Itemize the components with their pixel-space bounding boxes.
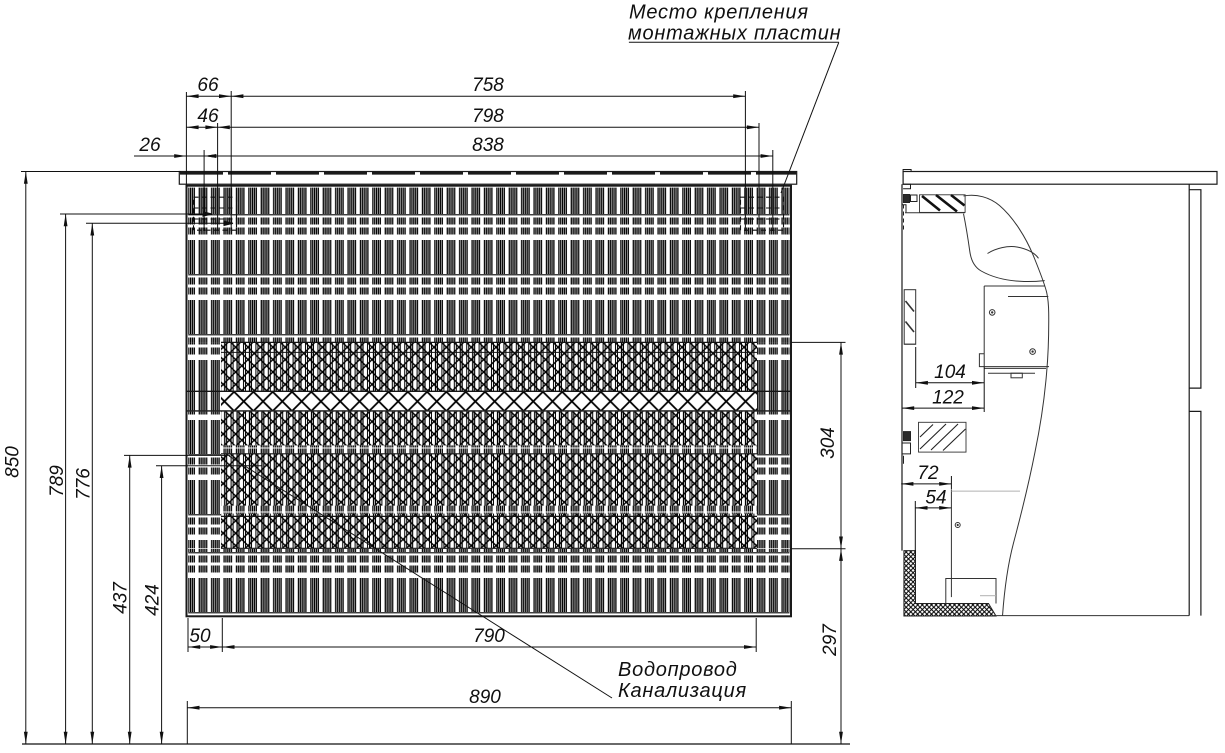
- svg-text:776: 776: [74, 468, 95, 500]
- svg-text:304: 304: [818, 427, 839, 459]
- svg-text:789: 789: [47, 465, 68, 497]
- svg-text:122: 122: [932, 388, 964, 409]
- svg-text:54: 54: [925, 488, 946, 509]
- svg-text:монтажных пластин: монтажных пластин: [628, 23, 841, 45]
- svg-text:758: 758: [472, 75, 504, 96]
- svg-text:297: 297: [820, 623, 841, 657]
- svg-text:Место крепления: Место крепления: [629, 2, 809, 24]
- svg-text:26: 26: [138, 135, 161, 156]
- svg-text:46: 46: [197, 106, 219, 127]
- svg-text:50: 50: [189, 626, 211, 647]
- svg-text:104: 104: [934, 362, 966, 383]
- svg-text:838: 838: [472, 135, 504, 156]
- svg-text:437: 437: [111, 581, 132, 614]
- svg-text:72: 72: [917, 463, 939, 484]
- svg-text:66: 66: [197, 75, 219, 96]
- svg-text:798: 798: [472, 106, 504, 127]
- svg-text:Водопровод: Водопровод: [618, 659, 738, 681]
- svg-text:890: 890: [469, 687, 501, 708]
- svg-text:Канализация: Канализация: [618, 680, 747, 702]
- svg-text:424: 424: [143, 584, 164, 616]
- svg-text:790: 790: [473, 626, 505, 647]
- svg-text:850: 850: [3, 446, 24, 478]
